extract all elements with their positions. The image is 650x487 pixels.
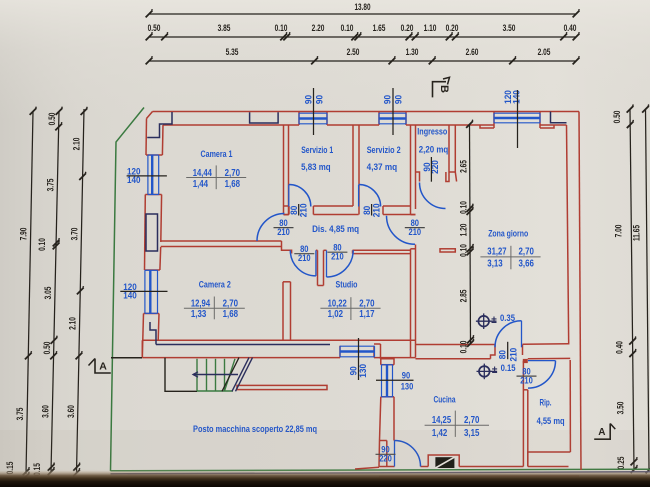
svg-text:80: 80	[498, 350, 508, 359]
svg-text:3.85: 3.85	[218, 23, 231, 33]
svg-text:2,20 mq: 2,20 mq	[419, 145, 449, 156]
svg-text:1,02: 1,02	[328, 309, 344, 320]
svg-text:2.20: 2.20	[312, 23, 325, 33]
svg-text:0.15: 0.15	[501, 363, 517, 374]
svg-text:1.10: 1.10	[424, 23, 437, 33]
svg-text:2.10: 2.10	[71, 138, 81, 151]
svg-text:210: 210	[508, 348, 518, 362]
svg-text:1,17: 1,17	[359, 309, 375, 320]
svg-text:130: 130	[401, 382, 414, 392]
svg-text:210: 210	[371, 203, 381, 217]
svg-text:3.60: 3.60	[40, 405, 50, 418]
svg-text:0.50: 0.50	[612, 111, 622, 124]
svg-text:2.60: 2.60	[466, 47, 479, 57]
svg-text:5.35: 5.35	[226, 47, 239, 57]
svg-text:1,44: 1,44	[193, 179, 209, 190]
svg-text:Ingresso: Ingresso	[417, 127, 447, 138]
svg-text:1.20: 1.20	[459, 224, 469, 237]
svg-text:Rip.: Rip.	[540, 398, 552, 409]
svg-text:0.10: 0.10	[459, 341, 469, 354]
svg-text:210: 210	[298, 253, 311, 263]
svg-text:90: 90	[304, 95, 314, 104]
svg-text:210: 210	[520, 376, 533, 386]
svg-text:90: 90	[349, 366, 359, 375]
svg-text:3.05: 3.05	[43, 287, 53, 300]
svg-text:7.00: 7.00	[613, 225, 623, 238]
svg-text:2.50: 2.50	[347, 47, 360, 57]
svg-text:Cucina: Cucina	[434, 395, 456, 406]
svg-text:11.65: 11.65	[632, 225, 642, 241]
svg-text:0.10: 0.10	[459, 201, 469, 214]
svg-text:0.50: 0.50	[47, 113, 57, 126]
svg-text:3.75: 3.75	[15, 408, 25, 421]
svg-text:Zona giorno: Zona giorno	[488, 229, 528, 240]
svg-text:0.20: 0.20	[401, 23, 414, 33]
svg-text:14,44: 14,44	[193, 168, 213, 179]
svg-text:210: 210	[409, 227, 422, 237]
svg-text:0.10: 0.10	[37, 238, 47, 251]
svg-text:1,33: 1,33	[191, 309, 207, 320]
svg-text:3.70: 3.70	[69, 228, 79, 241]
svg-text:3,66: 3,66	[519, 258, 535, 269]
svg-text:7.90: 7.90	[19, 228, 29, 241]
svg-text:2.05: 2.05	[538, 47, 551, 57]
svg-text:4,37 mq: 4,37 mq	[367, 162, 398, 173]
svg-text:3,13: 3,13	[487, 258, 503, 269]
svg-text:2.65: 2.65	[459, 160, 469, 173]
svg-text:3.50: 3.50	[615, 402, 625, 415]
svg-text:210: 210	[331, 252, 344, 262]
svg-text:3.50: 3.50	[503, 23, 516, 33]
svg-text:1.30: 1.30	[406, 47, 419, 57]
svg-text:2,70: 2,70	[225, 168, 241, 179]
svg-text:0.10: 0.10	[341, 23, 354, 33]
svg-text:90: 90	[402, 370, 410, 380]
svg-text:0.10: 0.10	[459, 244, 469, 257]
svg-text:±: ±	[492, 365, 498, 376]
svg-text:1,68: 1,68	[223, 309, 239, 320]
svg-text:3.75: 3.75	[45, 179, 55, 192]
svg-text:90: 90	[383, 95, 393, 104]
svg-text:130: 130	[358, 364, 368, 378]
svg-text:0.10: 0.10	[275, 23, 288, 33]
svg-text:2,70: 2,70	[519, 247, 535, 258]
svg-text:0.40: 0.40	[615, 341, 625, 354]
svg-text:5,83 mq: 5,83 mq	[301, 162, 331, 173]
svg-text:A: A	[99, 361, 107, 373]
svg-text:31,27: 31,27	[487, 247, 507, 258]
svg-text:Studio: Studio	[336, 280, 358, 291]
svg-text:0.50: 0.50	[42, 342, 52, 355]
svg-text:±: ±	[491, 315, 497, 326]
svg-text:140: 140	[511, 90, 521, 104]
svg-text:210: 210	[299, 203, 309, 217]
svg-text:0.20: 0.20	[446, 23, 459, 33]
svg-text:2.10: 2.10	[68, 317, 78, 330]
svg-text:210: 210	[277, 227, 290, 237]
svg-text:3.60: 3.60	[66, 405, 76, 418]
svg-text:2,70: 2,70	[464, 415, 480, 426]
svg-text:2.85: 2.85	[459, 290, 469, 303]
svg-text:14,25: 14,25	[432, 415, 452, 426]
svg-text:0.50: 0.50	[148, 23, 161, 33]
svg-text:4,55 mq: 4,55 mq	[537, 416, 565, 427]
svg-text:1,68: 1,68	[225, 179, 241, 190]
svg-text:90: 90	[315, 95, 325, 104]
svg-text:Camera 2: Camera 2	[199, 280, 231, 291]
svg-text:0.35: 0.35	[500, 313, 516, 324]
svg-text:Dis. 4,85 mq: Dis. 4,85 mq	[312, 224, 359, 235]
svg-text:Servizio 1: Servizio 1	[301, 145, 333, 156]
svg-text:B: B	[438, 85, 450, 93]
svg-text:1.65: 1.65	[373, 23, 386, 33]
svg-text:0.40: 0.40	[564, 23, 577, 33]
svg-text:Servizio 2: Servizio 2	[367, 145, 401, 156]
svg-text:13.80: 13.80	[355, 1, 371, 12]
svg-text:Camera 1: Camera 1	[201, 149, 233, 160]
svg-text:90: 90	[394, 95, 404, 104]
